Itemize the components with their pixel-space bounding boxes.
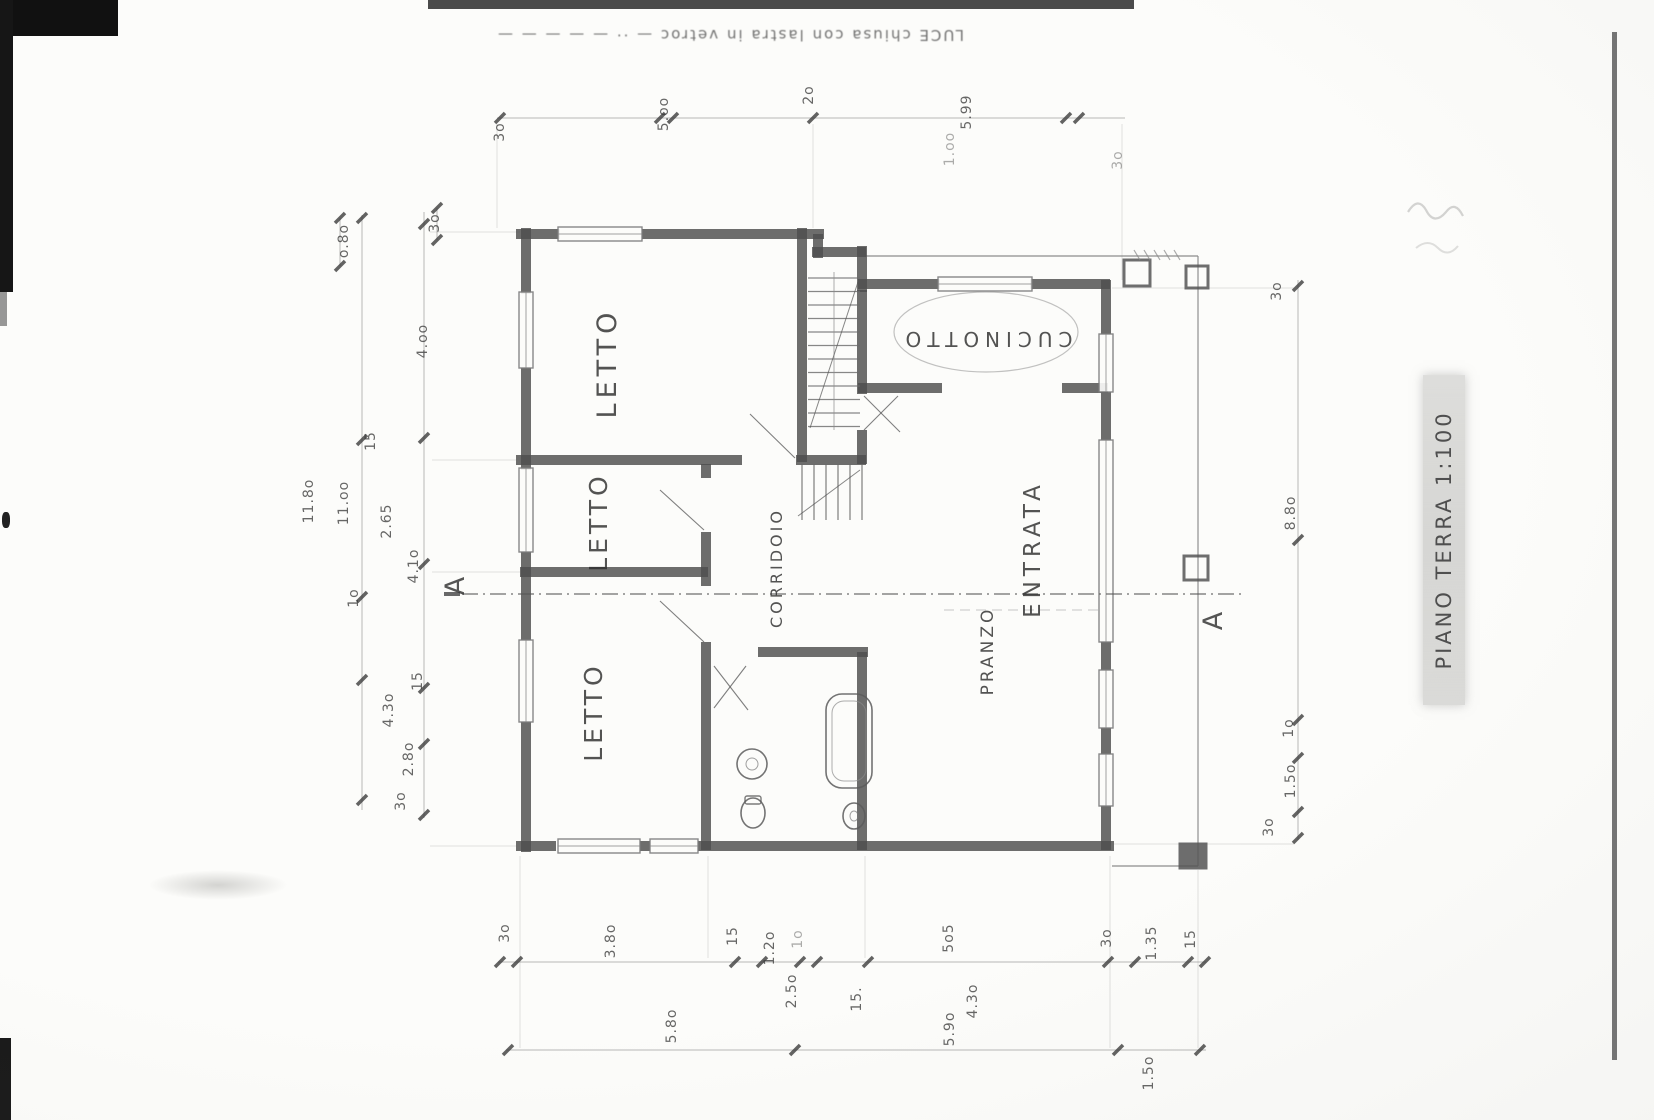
pencil-scribbles [1408,203,1463,252]
room-label-letto-3: LETTO [579,662,608,762]
dimension-label: 1.35 [1144,925,1160,960]
dimension-label: 5.oo [656,97,672,132]
dimension-label: 15 [725,926,741,946]
dimension-label: 2o [801,85,817,104]
dimension-label: 1o [346,588,362,607]
dimension-label: 15 [1183,929,1199,949]
room-label-letto-2: LETTO [584,472,613,572]
dimension-label: 1o [790,929,806,948]
dimension-label: 5o5 [941,923,957,952]
room-label-cucinotto: CUCINOTTO [900,327,1073,351]
section-marker-a-left: A [440,576,471,595]
room-label-letto-1: LETTO [592,308,623,419]
dimension-label: 11.oo [336,481,352,525]
dimension-label: 3o [393,791,409,810]
dimension-label: 1.5o [1283,764,1299,799]
dimension-label: 15 [410,671,426,691]
dimension-label: 3o [1110,150,1126,169]
dimension-label: 4.3o [965,984,981,1019]
dimension-label: 8.8o [1283,496,1299,531]
dimension-label: 2.5o [784,974,800,1009]
dimension-label: 2.65 [379,503,395,538]
staircase [798,272,862,520]
dimension-label: 3o [1261,817,1277,836]
dimension-label: 5.8o [664,1009,680,1044]
dimension-label: 3.8o [603,924,619,959]
dimension-label: 3o [492,122,508,141]
scanned-floor-plan-page: LUCE chiusa con lastra in vetroc — ·· — … [0,0,1654,1120]
room-label-corridoio: CORRIDOIO [767,508,786,628]
dimension-label: 4.oo [415,324,431,359]
dimension-label: 1.oo [942,132,958,167]
section-line-a-a [444,594,1242,610]
dimension-label: 3o [1269,281,1285,300]
dimension-label: 3o [1099,928,1115,947]
section-marker-a-right: A [1198,611,1229,630]
dimension-label: 5.99 [959,94,975,129]
dimension-label: 3o [497,923,513,942]
dimension-label: 5.9o [942,1012,958,1047]
dimension-label: 4.3o [381,693,397,728]
dimension-label: 3o [427,213,443,232]
dimension-label: 1o [1281,718,1297,737]
dimension-label: 1.2o [762,931,778,966]
dimension-label: 11.8o [301,479,317,524]
dimension-label: 2.8o [401,742,417,777]
dimension-label: o.8o [336,224,352,258]
room-label-pranzo: PRANZO [978,607,998,696]
dimension-label: 1.5o [1141,1056,1157,1091]
dimension-label: 4.1o [406,549,422,584]
floor-plan-drawing: LETTOLETTOLETTOCORRIDOIOCUCINOTTOENTRATA… [0,0,1654,1120]
dimension-label: 15 [363,431,379,451]
dimension-label: 15. [849,986,865,1011]
bathroom-fixtures [737,694,872,829]
room-label-entrata: ENTRATA [1020,480,1046,618]
